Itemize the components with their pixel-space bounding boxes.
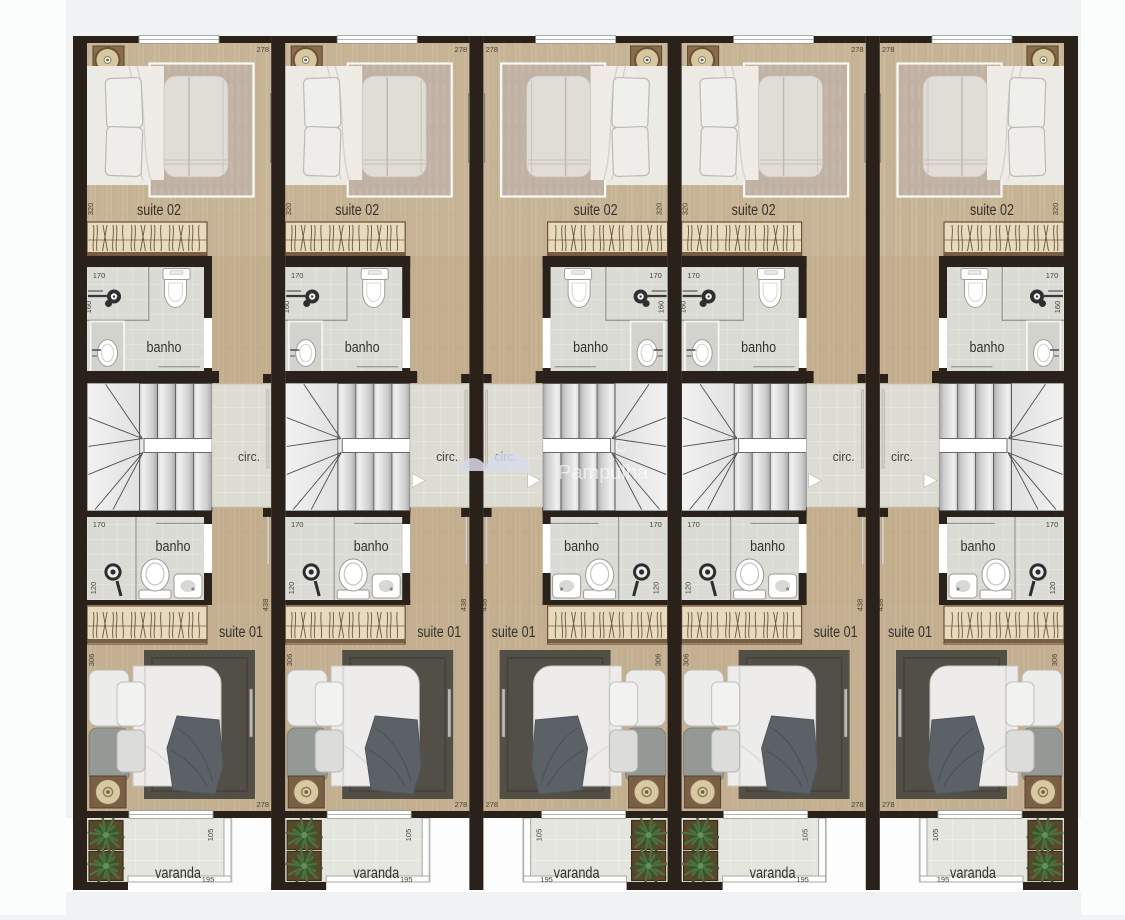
svg-text:438: 438 [459, 599, 468, 612]
svg-text:306: 306 [1050, 654, 1059, 667]
svg-text:320: 320 [655, 203, 664, 216]
svg-text:105: 105 [931, 829, 940, 842]
svg-text:278: 278 [486, 45, 499, 54]
svg-text:170: 170 [1046, 520, 1059, 529]
svg-text:suite 01: suite 01 [219, 624, 263, 641]
svg-text:278: 278 [455, 800, 468, 809]
svg-text:320: 320 [1051, 203, 1060, 216]
svg-text:120: 120 [652, 582, 661, 595]
svg-text:Pampulha: Pampulha [558, 462, 649, 484]
svg-text:306: 306 [87, 654, 96, 667]
svg-text:170: 170 [687, 520, 700, 529]
svg-text:195: 195 [202, 875, 215, 884]
svg-text:suite 02: suite 02 [732, 202, 776, 219]
svg-text:438: 438 [856, 599, 865, 612]
svg-text:120: 120 [1048, 582, 1057, 595]
svg-text:suite 01: suite 01 [888, 624, 932, 641]
svg-text:306: 306 [654, 654, 663, 667]
svg-text:320: 320 [681, 203, 690, 216]
svg-text:105: 105 [206, 829, 215, 842]
svg-text:circ.: circ. [238, 449, 260, 464]
svg-text:circ.: circ. [833, 449, 855, 464]
svg-text:320: 320 [86, 203, 95, 216]
svg-text:170: 170 [93, 520, 106, 529]
svg-text:circ.: circ. [891, 449, 913, 464]
svg-text:170: 170 [649, 271, 662, 280]
svg-text:170: 170 [291, 520, 304, 529]
svg-text:120: 120 [287, 582, 296, 595]
svg-text:170: 170 [291, 271, 304, 280]
svg-text:160: 160 [1053, 301, 1062, 314]
svg-text:105: 105 [801, 829, 810, 842]
svg-text:278: 278 [882, 800, 895, 809]
svg-text:170: 170 [1046, 271, 1059, 280]
svg-text:120: 120 [684, 582, 693, 595]
svg-text:306: 306 [285, 654, 294, 667]
svg-text:195: 195 [540, 875, 553, 884]
svg-text:banho: banho [564, 538, 599, 555]
svg-text:suite 01: suite 01 [492, 624, 536, 641]
svg-text:varanda: varanda [155, 865, 201, 882]
svg-text:suite 02: suite 02 [335, 202, 379, 219]
svg-text:circ.: circ. [436, 449, 458, 464]
svg-text:banho: banho [345, 339, 380, 356]
svg-text:banho: banho [147, 339, 182, 356]
svg-text:160: 160 [657, 301, 666, 314]
svg-text:278: 278 [455, 45, 468, 54]
svg-text:170: 170 [687, 271, 700, 280]
svg-text:suite 02: suite 02 [137, 202, 181, 219]
svg-text:320: 320 [284, 203, 293, 216]
svg-text:306: 306 [682, 654, 691, 667]
svg-text:banho: banho [750, 538, 785, 555]
svg-text:195: 195 [400, 875, 413, 884]
svg-text:banho: banho [573, 339, 608, 356]
svg-text:banho: banho [741, 339, 776, 356]
svg-text:105: 105 [404, 829, 413, 842]
svg-text:105: 105 [535, 829, 544, 842]
svg-text:278: 278 [486, 800, 499, 809]
svg-text:banho: banho [354, 538, 389, 555]
svg-text:suite 02: suite 02 [970, 202, 1014, 219]
svg-text:banho: banho [961, 538, 996, 555]
svg-text:195: 195 [796, 875, 809, 884]
svg-text:170: 170 [93, 271, 106, 280]
svg-text:suite 01: suite 01 [417, 624, 461, 641]
svg-text:438: 438 [261, 599, 270, 612]
svg-text:suite 02: suite 02 [574, 202, 618, 219]
svg-text:varanda: varanda [353, 865, 399, 882]
svg-text:banho: banho [156, 538, 191, 555]
svg-text:120: 120 [89, 582, 98, 595]
svg-text:278: 278 [851, 800, 864, 809]
svg-text:278: 278 [882, 45, 895, 54]
svg-text:suite 01: suite 01 [814, 624, 858, 641]
svg-text:banho: banho [970, 339, 1005, 356]
svg-text:Casa e C: Casa e C [556, 437, 627, 456]
svg-text:278: 278 [256, 800, 269, 809]
svg-text:varanda: varanda [950, 865, 996, 882]
svg-text:195: 195 [937, 875, 950, 884]
svg-text:170: 170 [649, 520, 662, 529]
svg-text:278: 278 [851, 45, 864, 54]
svg-text:278: 278 [256, 45, 269, 54]
svg-text:varanda: varanda [750, 865, 796, 882]
svg-text:varanda: varanda [554, 865, 600, 882]
